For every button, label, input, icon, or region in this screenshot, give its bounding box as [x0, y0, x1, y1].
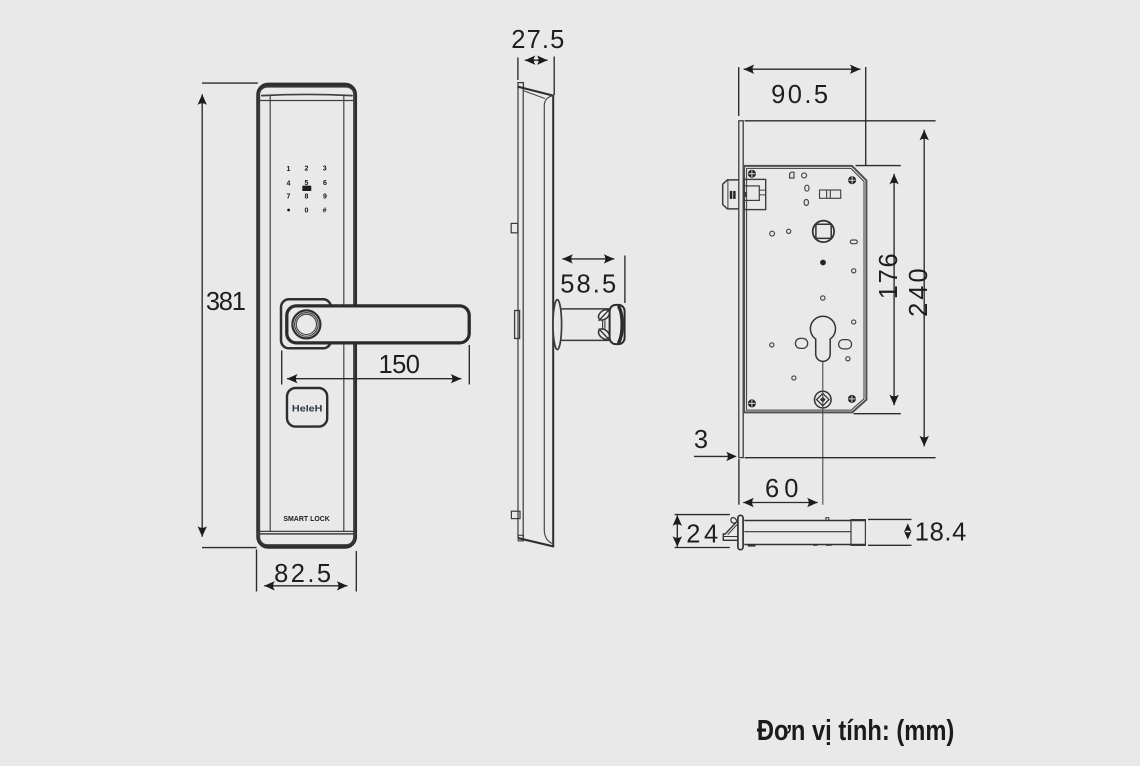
svg-text:9: 9: [323, 193, 327, 200]
svg-text:HeleH: HeleH: [292, 404, 323, 414]
svg-text:Đơn vị tính: (mm): Đơn vị tính: (mm): [757, 715, 955, 747]
svg-text:90.5: 90.5: [771, 81, 828, 109]
svg-text:7: 7: [287, 194, 291, 201]
svg-text:82.5: 82.5: [274, 560, 331, 588]
svg-text:1: 1: [287, 166, 291, 173]
svg-text:6: 6: [323, 180, 327, 187]
svg-text:150: 150: [378, 351, 420, 379]
svg-text:#: #: [323, 207, 327, 214]
svg-text:381: 381: [206, 288, 246, 316]
svg-text:58.5: 58.5: [560, 271, 616, 299]
svg-text:4: 4: [287, 180, 291, 187]
svg-text:SMART LOCK: SMART LOCK: [283, 514, 330, 523]
svg-text:27.5: 27.5: [511, 26, 564, 54]
svg-text:8: 8: [305, 193, 309, 200]
svg-text:176: 176: [875, 253, 903, 299]
svg-text:0: 0: [305, 207, 309, 214]
svg-text:2: 2: [305, 166, 309, 173]
svg-text:18.4: 18.4: [915, 519, 967, 547]
svg-text:240: 240: [905, 268, 933, 317]
svg-text:3: 3: [323, 166, 327, 173]
svg-text:3: 3: [694, 426, 708, 454]
